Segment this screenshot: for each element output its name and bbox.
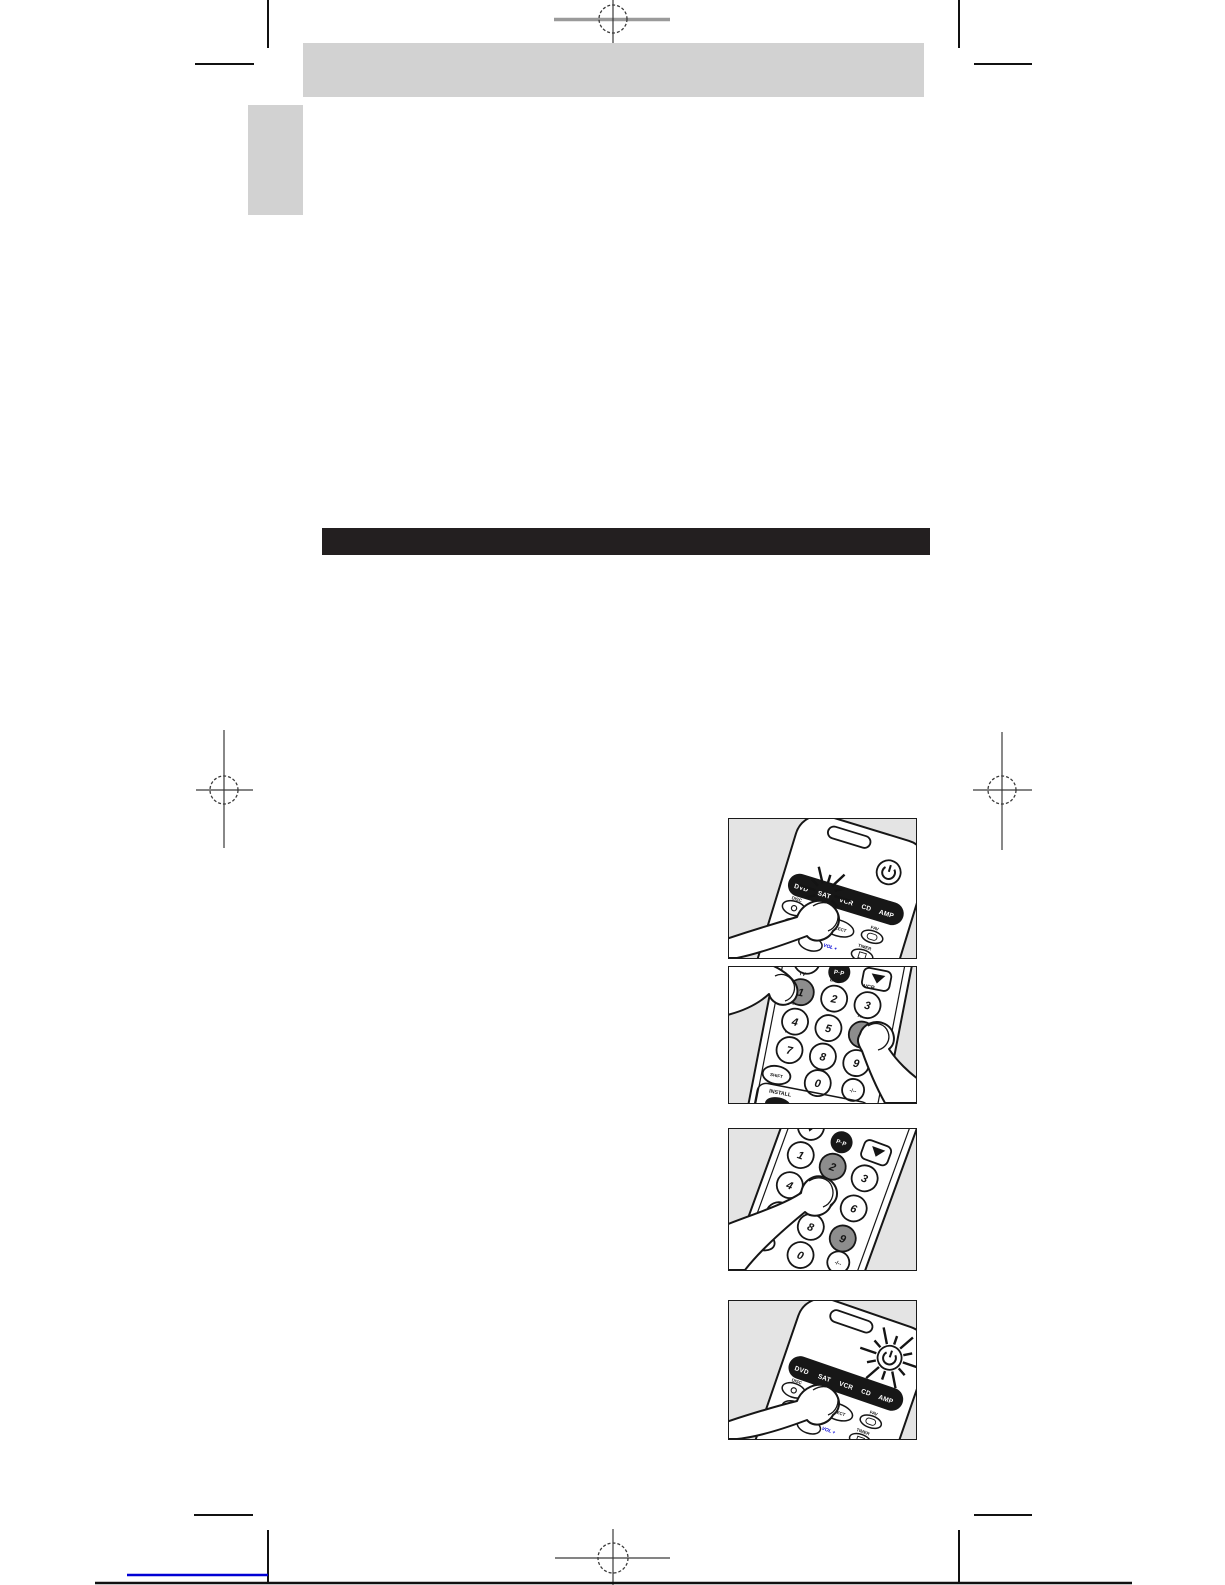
manual-page: DVD SAT VCR CD AMP DISC SELECT FA bbox=[0, 0, 1225, 1585]
figure-confirm-code: DVD SAT VCR CD AMP DISC SELECT FAV TIMER… bbox=[728, 1300, 917, 1440]
figure-select-source: DVD SAT VCR CD AMP DISC SELECT FA bbox=[728, 818, 917, 959]
figure-enter-code-second: P·P 1 2 3 4 5 6 7 8 9 bbox=[728, 1128, 917, 1271]
margin-placeholder-block bbox=[248, 105, 303, 215]
figure-enter-code-first: P·P TV DVD VCR SAT CD AUX TAPE 1 2 3 4 bbox=[728, 966, 917, 1104]
section-divider-bar bbox=[322, 528, 930, 555]
print-crop-marks bbox=[0, 0, 1225, 1585]
header-placeholder-bar bbox=[303, 43, 924, 97]
